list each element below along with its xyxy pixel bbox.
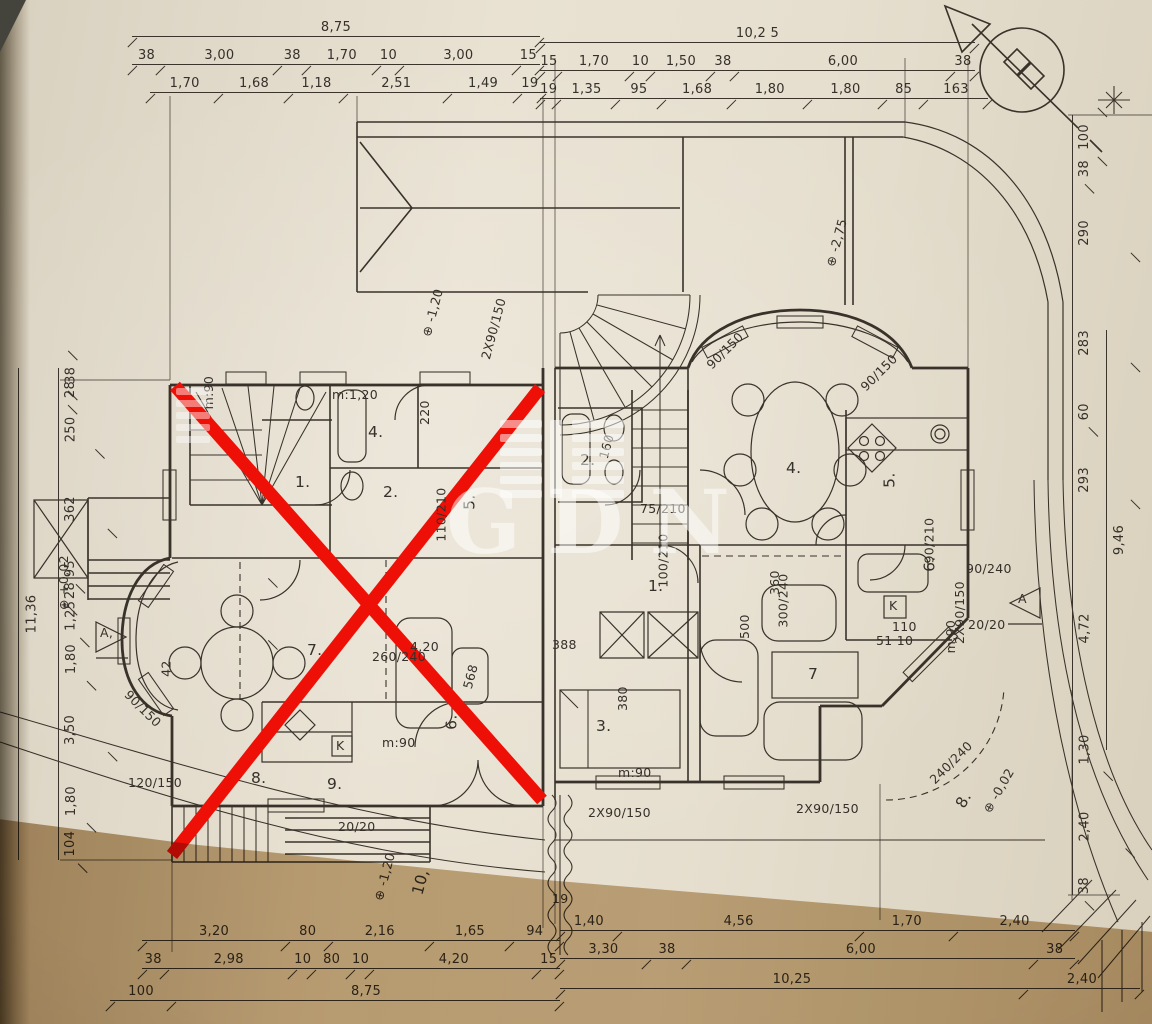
dim-value: 4,56 — [618, 915, 860, 930]
dim-value: 1,65 — [430, 925, 509, 940]
room-label: 7 — [808, 666, 818, 682]
dim-label: 380 — [616, 686, 629, 711]
dim-value: 11,36 — [0, 595, 277, 634]
dim-value: 1,49 — [448, 77, 517, 92]
room-label: 9. — [327, 776, 342, 792]
dim-value: 3,00 — [400, 49, 517, 64]
section-marker-label: A — [1018, 592, 1027, 605]
dim-chain-top-right-3: 191,35951,681,801,8085163 — [540, 76, 988, 99]
dim-label: 388 — [552, 638, 577, 651]
dim-chain-bottom-right-3: 10,252,40 — [560, 966, 1140, 989]
dim-label: 2X90/150 — [796, 802, 859, 815]
dim-label: 300/240 — [776, 574, 789, 628]
dim-value: 80 — [312, 953, 351, 968]
room-label: 5. — [882, 472, 898, 487]
dim-chain-bottom-left-1: 3,20802,161,6594 — [142, 918, 560, 941]
dim-value: 1,80 — [808, 83, 884, 98]
dim-value: 3,50 — [25, 715, 117, 745]
dim-label: m:90 — [202, 376, 215, 410]
dim-label: 568 — [461, 663, 480, 690]
dim-value: 10 — [377, 49, 400, 64]
dim-label: 500 — [738, 614, 751, 639]
dim-value: 250 — [38, 416, 105, 442]
dim-value: 9,46 — [909, 525, 1152, 555]
dim-value: 1,40 — [560, 915, 618, 930]
dim-value: 4,20 — [370, 953, 537, 968]
dim-value: 10 — [630, 55, 651, 70]
dim-value: 100 — [110, 985, 172, 1000]
dim-value: 38 — [132, 49, 161, 64]
floorplan-scan: 8,75 383,00381,70103,0015 1,701,681,182,… — [0, 0, 1152, 1024]
room-label: 3. — [596, 718, 611, 734]
dim-chain-top-right-2: 151,70101,50386,0038 — [540, 48, 975, 71]
dim-value: 2,16 — [329, 925, 430, 940]
dim-value: 38 — [1075, 877, 1094, 894]
dim-label: 100/210 — [656, 534, 669, 588]
dim-label: 110 — [892, 620, 917, 633]
dim-label: m:90 — [618, 766, 652, 779]
dim-label: 240/240 — [927, 739, 974, 786]
dim-label: 90/210 — [922, 518, 935, 564]
dim-label: 90/150 — [122, 688, 164, 730]
dim-value: 8,75 — [172, 985, 560, 1000]
dim-value: 94 — [510, 925, 560, 940]
dim-value: 104 — [54, 830, 87, 856]
dim-chain-left-items: 382825036295281,251,803,501,80104 — [58, 368, 83, 860]
level-marker: ⊕ -2,75 — [824, 217, 849, 268]
dim-value: 8,75 — [132, 21, 540, 36]
dim-label: 75/210 — [640, 502, 686, 515]
dim-label: 2X90/150 — [479, 296, 508, 360]
dim-value: 38 — [951, 55, 975, 70]
dim-value: 85 — [883, 83, 924, 98]
dim-value: 1,80 — [46, 644, 96, 674]
dim-value: 19 — [540, 83, 557, 98]
dim-value: 1,80 — [732, 83, 808, 98]
dim-chain-top-right-total: 10,2 5 — [540, 20, 975, 43]
dim-value: 95 — [616, 83, 663, 98]
dim-value: 38 — [711, 55, 735, 70]
level-marker: ⊕ +0,02 — [57, 555, 70, 610]
dim-value: 15 — [540, 55, 558, 70]
dim-label: 20/20 — [338, 820, 376, 833]
section-marker-label: A, — [100, 626, 113, 639]
dim-value: 80 — [286, 925, 329, 940]
dim-value: 1,50 — [651, 55, 711, 70]
dim-label: 42 — [160, 660, 173, 677]
dim-label: 20/20 — [968, 618, 1006, 631]
dim-label: K — [336, 739, 345, 752]
dim-value: 3,30 — [560, 943, 647, 958]
dim-value: 10,25 — [560, 973, 1024, 988]
dim-label: 4,20 — [410, 640, 439, 653]
level-marker: ⊕ -1,20 — [372, 851, 397, 902]
dim-value: 1,68 — [219, 77, 288, 92]
dim-value: 362 — [25, 496, 117, 522]
dim-value: 10,2 5 — [540, 27, 975, 42]
dim-label: 2X90/150 — [588, 806, 651, 819]
dim-value: 2,40 — [1024, 973, 1140, 988]
dim-value: 1,68 — [662, 83, 732, 98]
room-label: 5. — [462, 494, 478, 509]
dim-chain-right-total: 9,46 — [1106, 330, 1131, 750]
dim-chain-bottom-left-2: 382,981080104,2015 — [142, 946, 560, 969]
dim-value: 1,80 — [46, 786, 96, 816]
dimension-layer: 8,75 383,00381,70103,0015 1,701,681,182,… — [0, 0, 1152, 1024]
dim-label: m:1,20 — [332, 388, 378, 401]
dim-chain-bottom-right-1: 1,404,561,702,40 — [560, 908, 1075, 931]
room-label: 8. — [953, 789, 975, 810]
dim-value: 38 — [1075, 160, 1094, 177]
dim-label: 120/150 — [128, 776, 182, 789]
dim-value: 1,70 — [860, 915, 955, 930]
dim-chain-right-items: 10038290283602934,721,302,4038 — [1072, 115, 1097, 895]
room-label: 2. — [580, 452, 595, 468]
dim-value: 10 — [351, 953, 370, 968]
dim-value: 38 — [1034, 943, 1075, 958]
dim-chain-top-left-total: 8,75 — [132, 14, 540, 37]
dim-value: 6,00 — [735, 55, 951, 70]
dim-value: 1,18 — [289, 77, 345, 92]
dim-value: 3,00 — [161, 49, 278, 64]
dim-value: 38 — [647, 943, 688, 958]
dim-value: 1,30 — [1058, 734, 1113, 764]
dim-value: 2,51 — [344, 77, 448, 92]
dim-chain-top-left-3: 1,701,681,182,511,4919 — [150, 70, 542, 93]
dim-label: 160 — [597, 433, 616, 460]
room-label: 2. — [383, 484, 398, 500]
dim-label: m:90 — [382, 736, 416, 749]
dim-value: 2,98 — [165, 953, 294, 968]
room-label: 4. — [368, 424, 383, 440]
dim-value: 1,70 — [307, 49, 377, 64]
dim-label: 90/240 — [966, 562, 1012, 575]
dim-value: 38 — [142, 953, 165, 968]
dim-label: 90/150 — [858, 352, 900, 394]
dim-label: 2X90/150 — [953, 581, 966, 644]
dim-value: 38 — [278, 49, 307, 64]
room-label: 1. — [295, 474, 310, 490]
room-label: 8. — [251, 770, 266, 786]
dim-label: 110/210 — [434, 488, 447, 542]
dim-chain-top-left-2: 383,00381,70103,0015 — [132, 42, 540, 65]
dim-value: 3,20 — [142, 925, 286, 940]
dim-value: 290 — [1030, 220, 1140, 246]
dim-value: 2,40 — [954, 915, 1075, 930]
dim-value: 28 — [65, 381, 78, 398]
level-marker: ⊕ -0,02 — [981, 766, 1017, 815]
dim-label: K — [889, 599, 898, 612]
dim-label: 19 — [552, 892, 569, 905]
dim-value: 163 — [924, 83, 988, 98]
room-label: 10, — [410, 868, 432, 897]
room-label: 7. — [307, 642, 322, 658]
dim-value: 60 — [1071, 403, 1098, 420]
dim-value: 1,35 — [557, 83, 615, 98]
dim-value: 6,00 — [687, 943, 1034, 958]
dim-label: 90/150 — [704, 330, 746, 372]
dim-value: 10 — [293, 953, 312, 968]
dim-label: 220 — [418, 400, 431, 425]
dim-chain-bottom-left-3: 1008,75 — [110, 978, 560, 1001]
room-label: 6. — [444, 714, 460, 729]
dim-value: 1,70 — [150, 77, 219, 92]
dim-chain-bottom-right-2: 3,30386,0038 — [560, 936, 1075, 959]
dim-label: 51 10 — [876, 634, 913, 647]
dim-value: 100 — [1063, 124, 1107, 150]
dim-value: 1,70 — [558, 55, 630, 70]
level-marker: ⊕ -1,20 — [420, 287, 445, 338]
room-label: 4. — [786, 460, 801, 476]
dim-value: 2,40 — [1036, 811, 1135, 841]
